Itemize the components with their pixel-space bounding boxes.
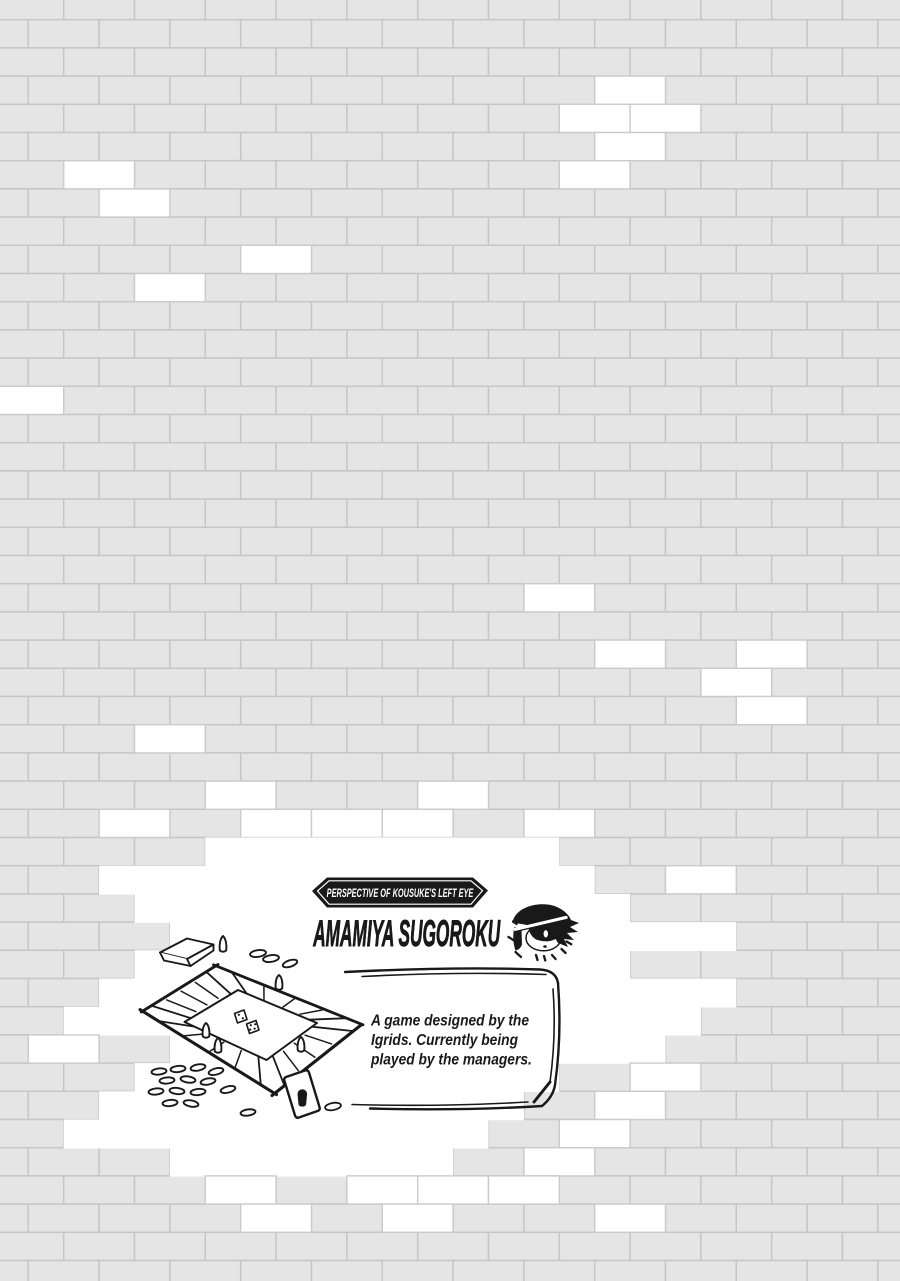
- svg-text:played by the managers.: played by the managers.: [370, 1052, 532, 1069]
- svg-text:AMAMIYA SUGOROKU: AMAMIYA SUGOROKU: [313, 914, 501, 955]
- svg-text:Igrids. Currently being: Igrids. Currently being: [371, 1032, 518, 1049]
- svg-text:PERSPECTIVE OF KOUSUKE'S LEFT: PERSPECTIVE OF KOUSUKE'S LEFT EYE: [327, 887, 474, 900]
- svg-text:A game designed by the: A game designed by the: [370, 1013, 529, 1030]
